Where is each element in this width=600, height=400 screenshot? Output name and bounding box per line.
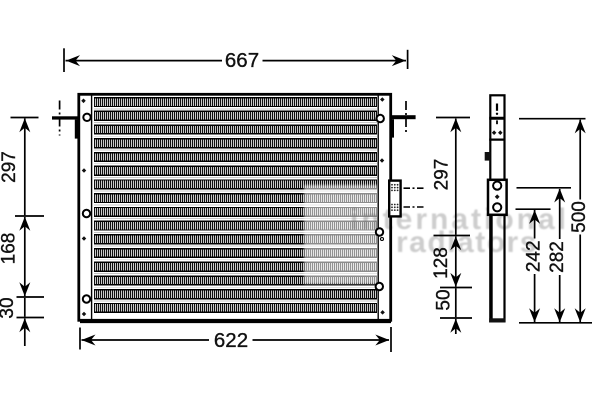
svg-text:128: 128 — [431, 247, 452, 279]
svg-text:500: 500 — [569, 201, 590, 233]
svg-text:168: 168 — [0, 233, 20, 265]
svg-text:297: 297 — [432, 159, 453, 191]
svg-text:282: 282 — [547, 241, 568, 273]
svg-text:297: 297 — [0, 151, 20, 183]
svg-text:242: 242 — [523, 240, 544, 272]
svg-text:30: 30 — [0, 297, 18, 318]
svg-text:622: 622 — [214, 329, 248, 352]
svg-text:50: 50 — [434, 289, 455, 310]
svg-text:667: 667 — [225, 49, 259, 72]
